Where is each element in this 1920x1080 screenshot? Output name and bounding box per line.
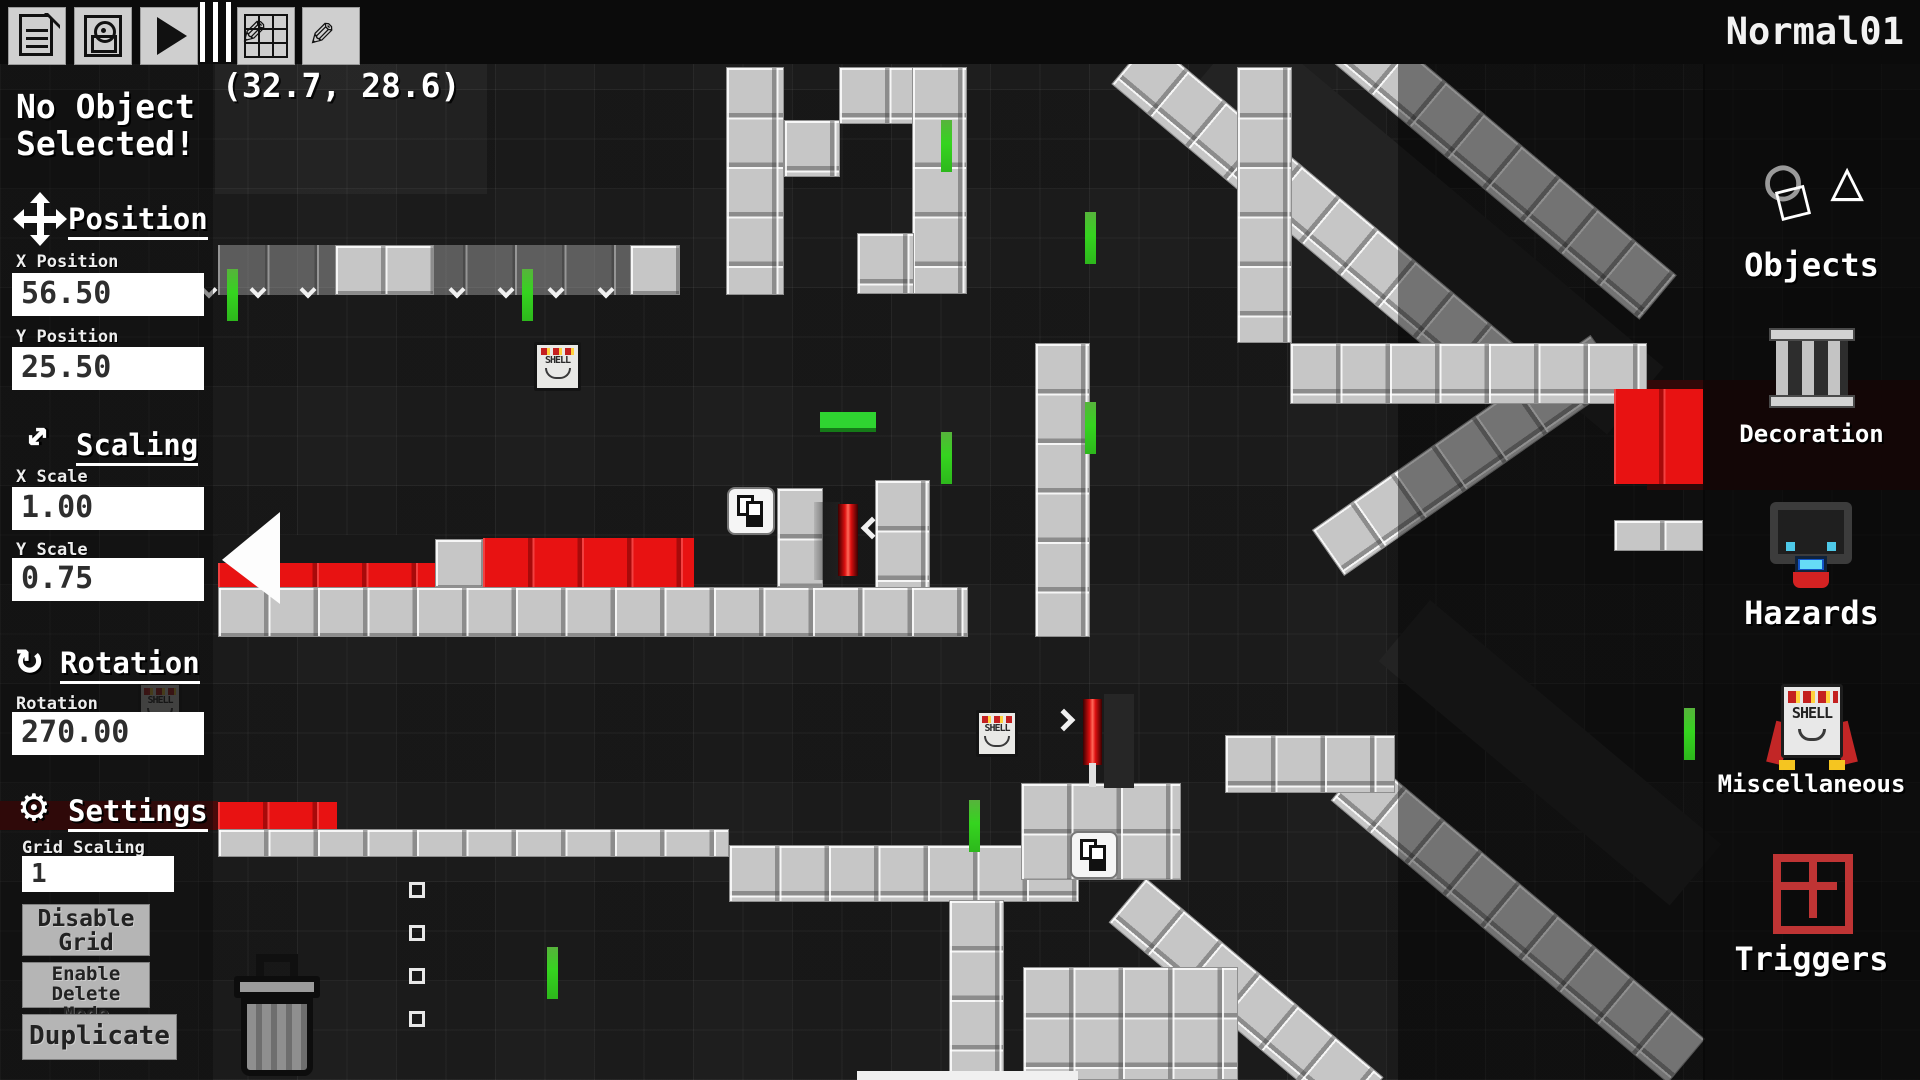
smile-icon [984,736,1010,747]
level-name: Normal01 [1726,10,1904,53]
pole [1089,763,1096,787]
green-marker[interactable] [969,800,980,852]
grid-scaling-input[interactable]: 1 [22,856,174,892]
y-position-label: Y Position [16,327,118,347]
trash-lid [234,976,320,998]
tile-light[interactable] [726,67,784,295]
square-marker[interactable] [409,1011,425,1027]
tile-light[interactable] [857,233,914,294]
laser-emitter[interactable] [1083,694,1135,790]
tile-light[interactable] [435,539,483,587]
tile-light[interactable] [1023,967,1238,1080]
shell-text: SHELL [979,723,1015,735]
play-icon [157,17,187,55]
rotation-header: Rotation [60,646,200,684]
tile-greenplat[interactable] [820,412,876,428]
tile-light[interactable] [912,67,967,294]
toolbar-divider [226,2,231,62]
toolbar-divider [200,2,205,62]
palette-panel: ○ △ □ Objects Decoration Hazards SHELL [1703,64,1920,1080]
hazard-eye-icon [1786,542,1795,551]
scaling-icon: ↔ [11,410,61,460]
tile-red[interactable] [218,802,337,829]
x-position-label: X Position [16,252,118,272]
tile-dark3[interactable] [1398,64,1705,1080]
checkpoint-tile[interactable] [1070,831,1118,879]
disable-grid-button[interactable]: Disable Grid [22,904,150,956]
palette-item-triggers[interactable]: Triggers [1703,940,1920,978]
palette-item-objects[interactable]: Objects [1703,246,1920,284]
tile-light[interactable] [1614,520,1703,551]
square-marker[interactable] [409,925,425,941]
shop-slots [982,716,1012,723]
scaling-header: Scaling [76,428,198,466]
hazards-icon [1770,502,1852,590]
tile-light[interactable] [218,829,729,857]
save-button[interactable] [74,7,132,65]
gear-icon: ⚙ [20,778,48,832]
toolbar: ✎ ✎ Normal01 [0,0,1920,64]
tile-white[interactable] [857,1071,1078,1080]
y-position-input[interactable]: 25.50 [12,347,204,390]
trigger-grid-icon [1773,854,1853,934]
palette-item-decoration[interactable]: Decoration [1703,420,1920,448]
tile-red[interactable] [483,538,694,587]
position-header: Position [68,202,208,240]
move-icon [18,196,62,242]
shell-shop-box[interactable]: SHELL [534,342,581,391]
tile-light[interactable] [784,120,840,177]
pencil-icon: ✎ [242,8,266,54]
cursor-coordinates: (32.7, 28.6) [222,66,460,105]
pencil-icon: ✎ [310,10,334,56]
level-editor: SHELLSHELLSHELL No Object Selected! Posi… [0,0,1920,1080]
level-canvas[interactable]: SHELLSHELLSHELL [0,0,1920,1080]
palette-item-hazards[interactable]: Hazards [1703,594,1920,632]
square-marker[interactable] [409,968,425,984]
trash-body [241,998,313,1076]
x-scale-input[interactable]: 1.00 [12,487,204,530]
green-marker[interactable] [941,432,952,484]
x-scale-label: X Scale [16,467,88,487]
tile-light[interactable] [949,900,1004,1080]
green-marker[interactable] [1085,212,1096,264]
shell-text: SHELL [1784,704,1840,722]
tile-light[interactable] [630,245,680,295]
rotation-input[interactable]: 270.00 [12,712,204,755]
tile-light[interactable] [335,245,434,295]
inspector-panel: No Object Selected! Position X Position … [0,64,213,1080]
tile-light[interactable] [218,587,968,637]
rotation-icon: ↻ [16,632,43,683]
smoke-shadow [814,502,840,580]
checkpoint-tile[interactable] [727,487,775,535]
grid-scaling-label: Grid Scaling [22,838,145,858]
dark-block [1104,694,1134,788]
draw-button[interactable]: ✎ [302,7,360,65]
rotation-label: Rotation [16,694,98,714]
green-marker[interactable] [1684,708,1695,760]
x-position-input[interactable]: 56.50 [12,273,204,316]
red-laser-bar [1083,699,1102,765]
chevron-right-icon[interactable] [1053,709,1076,732]
square-shape-icon: □ [1770,167,1813,231]
objects-icon: ○ △ □ [1765,150,1860,240]
y-scale-label: Y Scale [16,540,88,560]
green-marker[interactable] [547,947,558,999]
laser-emitter[interactable] [814,500,862,582]
settings-header: Settings [68,794,208,832]
hazard-eye-icon [1827,542,1836,551]
smile-icon [545,368,571,379]
green-marker[interactable] [1085,402,1096,454]
tile-red[interactable] [1614,389,1703,484]
y-scale-input[interactable]: 0.75 [12,558,204,601]
tile-light[interactable] [1237,67,1292,343]
new-file-button[interactable] [8,7,66,65]
tile-light[interactable] [1035,343,1090,637]
decoration-icon [1769,328,1855,408]
green-marker[interactable] [227,269,238,321]
play-button[interactable] [140,7,198,65]
triangle-shape-icon: △ [1830,148,1864,213]
shell-shop-icon: SHELL [1773,684,1851,772]
tile-light[interactable] [1290,343,1647,404]
green-marker[interactable] [522,269,533,321]
palette-item-miscellaneous[interactable]: Miscellaneous [1703,770,1920,798]
resize-room-button[interactable]: ✎ [237,7,295,65]
trash-can[interactable] [234,954,320,1080]
shop-slots [541,348,575,355]
toolbar-divider [213,2,218,62]
shell-text: SHELL [537,355,578,367]
red-laser-bar [838,504,858,576]
shell-shop-box[interactable]: SHELL [976,710,1018,757]
duplicate-button[interactable]: Duplicate [22,1014,177,1060]
floppy-disk-icon [84,15,122,57]
enable-delete-mode-button[interactable]: Enable Delete Mode [22,962,150,1008]
tile-light[interactable] [1225,735,1395,793]
green-marker[interactable] [941,120,952,172]
tile-light[interactable] [839,67,914,124]
square-marker[interactable] [409,882,425,898]
page-fold-icon [46,11,62,27]
